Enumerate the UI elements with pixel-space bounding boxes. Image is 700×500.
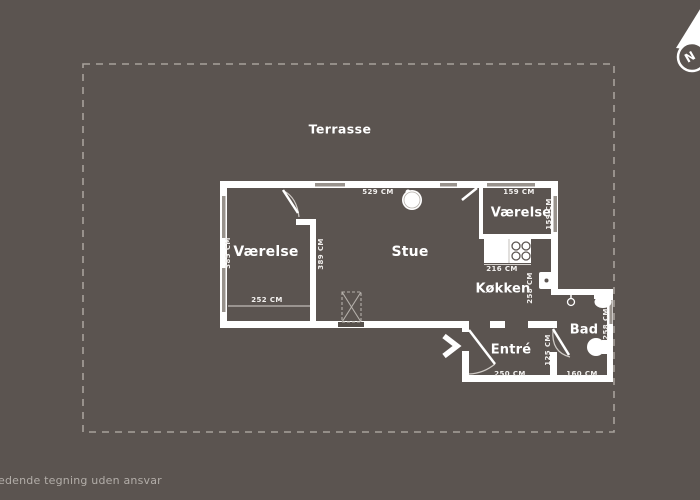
dim-bedroom-left-inner-height: 389 CM <box>317 238 325 270</box>
room-label-hall: Entré <box>491 343 532 358</box>
cooktop <box>484 239 531 263</box>
wall-segment <box>479 188 483 237</box>
dim-bathroom-width: 160 CM <box>566 370 598 378</box>
door-swing-arc <box>469 364 495 374</box>
wood-stove <box>402 190 422 211</box>
dim-living-room-width: 529 CM <box>362 188 394 196</box>
floor-plan-drawing <box>0 0 700 500</box>
window <box>315 183 345 187</box>
door-leaf <box>553 329 569 355</box>
wall-segment <box>479 234 551 239</box>
burner <box>522 252 530 260</box>
dim-bedroom-left-height: 385 CM <box>224 237 232 269</box>
dim-bedroom-right-height: 159 CM <box>545 198 553 230</box>
window <box>222 268 226 312</box>
floor-plan-canvas: N Terrasse Værelse Stue Værelse Køkken E… <box>0 0 700 500</box>
burner <box>512 242 520 250</box>
burner <box>522 242 530 250</box>
room-label-living-room: Stue <box>391 244 428 260</box>
wall-segment <box>296 219 316 225</box>
door-leaf <box>283 190 298 213</box>
window <box>487 183 535 187</box>
floor-drain <box>568 295 575 306</box>
window <box>554 196 558 232</box>
window <box>222 196 226 238</box>
room-label-bathroom: Bad <box>570 323 599 338</box>
floor-hatch <box>342 292 361 322</box>
dim-hall-width: 250 CM <box>494 370 526 378</box>
dim-bedroom-left-width: 252 CM <box>251 296 283 304</box>
entrance-chevron-icon <box>444 336 457 356</box>
dim-kitchen-height: 258 CM <box>526 272 534 304</box>
disclaimer-text: edende tegning uden ansvar <box>0 474 162 487</box>
burner <box>512 252 520 260</box>
room-label-kitchen: Køkken <box>476 282 531 297</box>
terrace-door-opening <box>338 322 364 327</box>
room-label-bedroom-left: Værelse <box>233 244 298 260</box>
wall-segment <box>490 321 505 328</box>
dim-hall-height: 125 CM <box>544 334 552 366</box>
toilet <box>587 338 610 356</box>
wall-segment <box>310 224 316 321</box>
wall-segment <box>462 351 469 382</box>
kitchen-sink <box>539 272 554 289</box>
dim-kitchen-width: 216 CM <box>486 265 518 273</box>
bathroom-sink <box>594 294 612 308</box>
wall-segment <box>528 321 557 328</box>
dim-bathroom-height: 258 CM <box>602 308 610 340</box>
window <box>440 183 457 187</box>
room-label-terrasse: Terrasse <box>309 122 372 137</box>
door-leaf <box>462 188 477 200</box>
room-label-bedroom-right: Værelse <box>491 206 552 221</box>
wall-segment <box>462 321 469 332</box>
dim-bedroom-right-width: 159 CM <box>503 188 535 196</box>
